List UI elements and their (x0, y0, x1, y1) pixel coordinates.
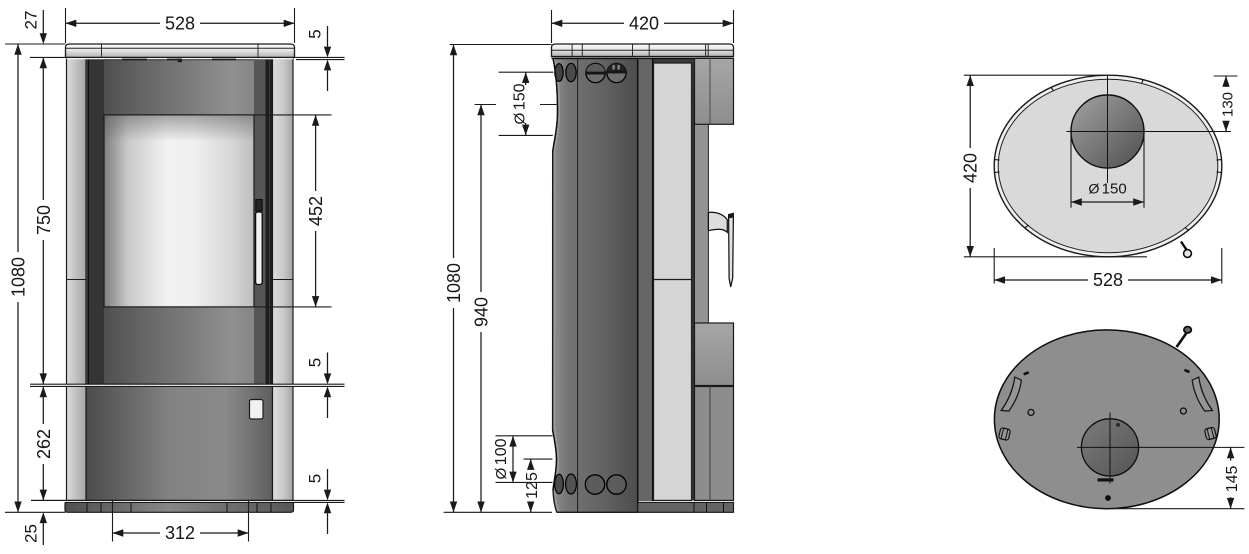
svg-text:125: 125 (524, 472, 541, 499)
svg-text:420: 420 (961, 153, 981, 183)
svg-text:Ø 100: Ø 100 (493, 438, 510, 479)
svg-text:528: 528 (165, 13, 195, 33)
svg-text:420: 420 (629, 13, 659, 33)
svg-text:528: 528 (1093, 270, 1123, 290)
svg-text:1080: 1080 (444, 263, 464, 303)
svg-text:5: 5 (306, 358, 325, 367)
svg-text:452: 452 (306, 196, 326, 226)
svg-text:Ø 150: Ø 150 (1088, 181, 1126, 198)
svg-text:750: 750 (34, 205, 54, 235)
svg-text:940: 940 (472, 297, 492, 327)
svg-text:27: 27 (22, 11, 41, 30)
svg-text:Ø 150: Ø 150 (512, 83, 529, 124)
svg-text:312: 312 (165, 523, 195, 543)
svg-text:5: 5 (306, 474, 325, 483)
svg-text:1080: 1080 (9, 257, 29, 297)
svg-text:25: 25 (22, 524, 41, 543)
svg-text:262: 262 (34, 429, 54, 459)
svg-text:145: 145 (1224, 465, 1241, 492)
svg-text:5: 5 (306, 29, 325, 38)
svg-text:130: 130 (1220, 92, 1237, 117)
